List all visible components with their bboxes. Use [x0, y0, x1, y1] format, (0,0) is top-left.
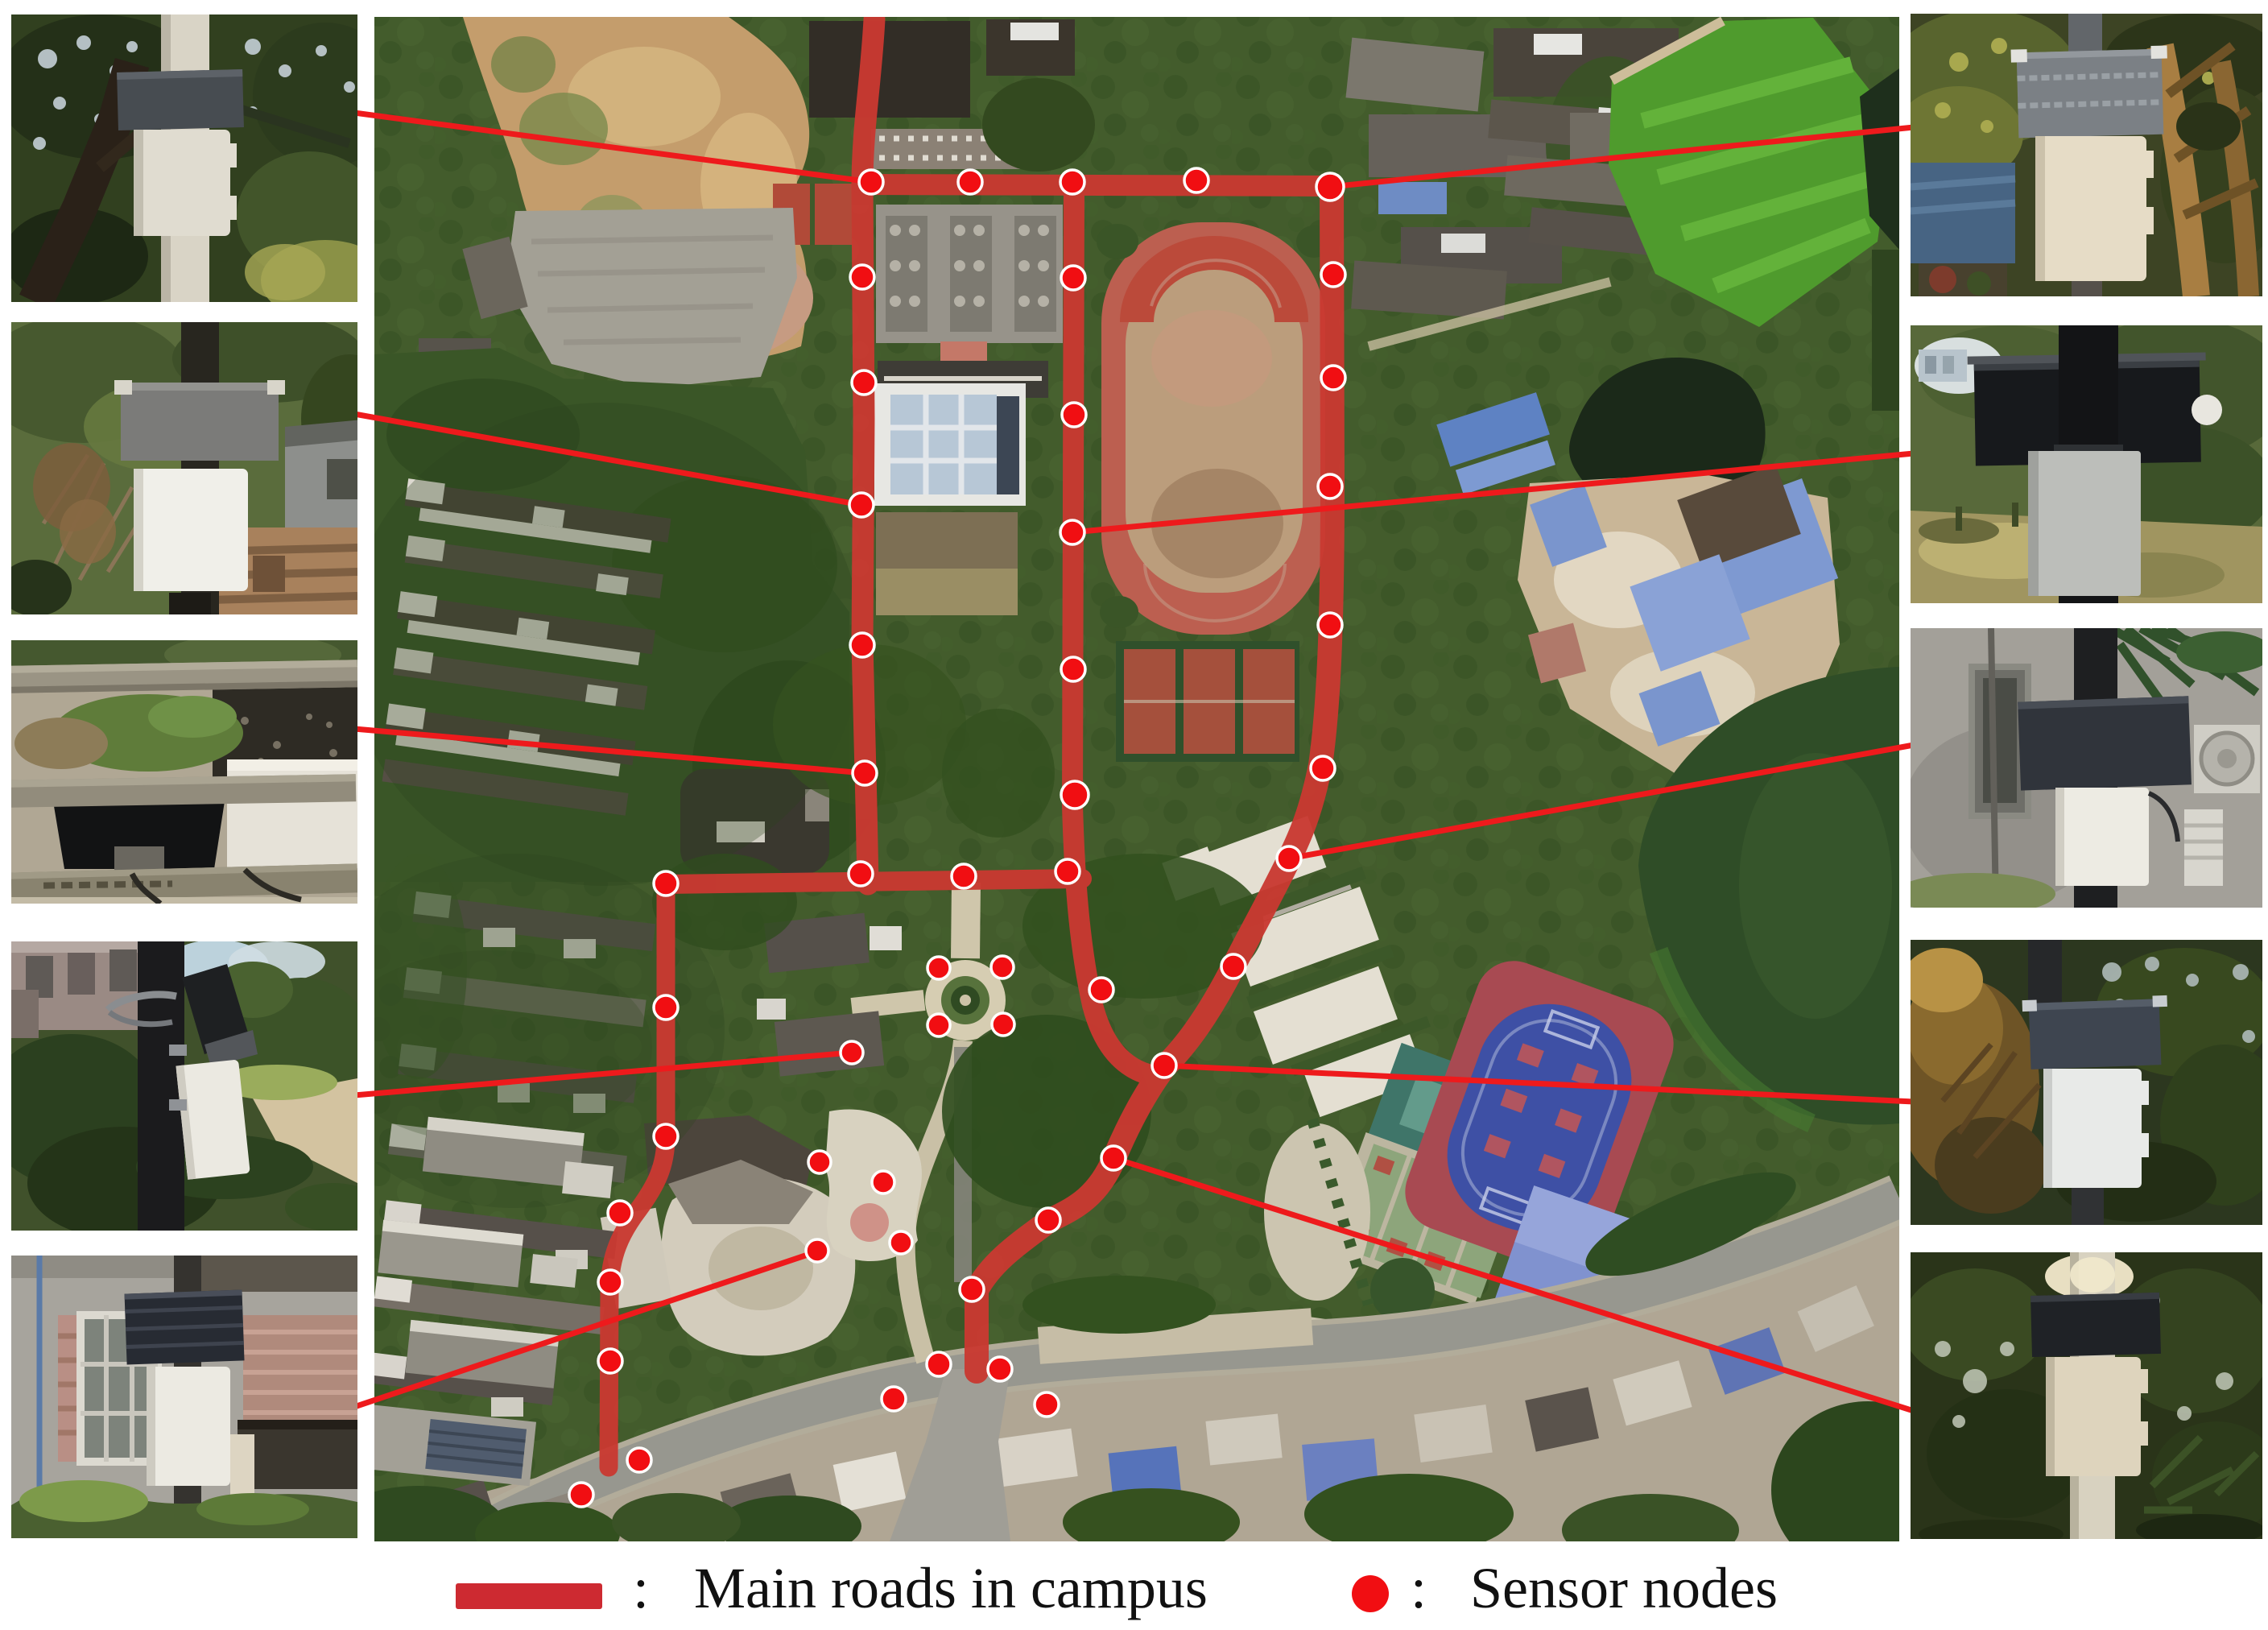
svg-text::: :	[1411, 1556, 1427, 1620]
svg-text:Main roads in campus: Main roads in campus	[694, 1556, 1208, 1620]
svg-text::: :	[633, 1556, 649, 1620]
svg-text:Sensor nodes: Sensor nodes	[1470, 1556, 1778, 1620]
